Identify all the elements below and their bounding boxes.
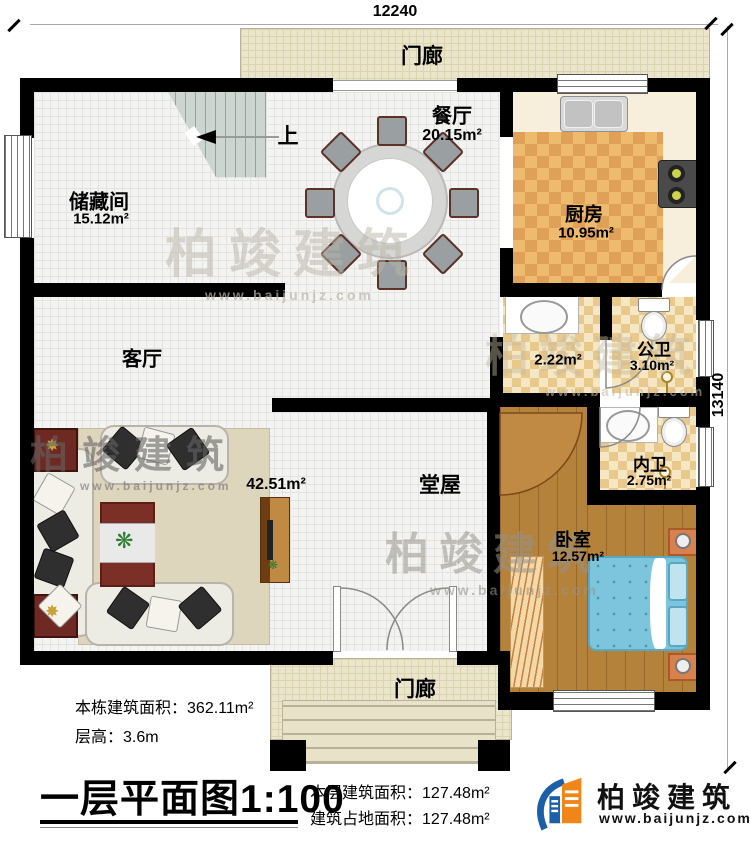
wall-hall-dining — [272, 398, 500, 412]
dimension-width: 12240 — [373, 3, 418, 21]
floor-area-label: 本层建筑面积： — [310, 785, 422, 802]
dining-chair — [377, 260, 407, 290]
wall-bedroom-bottom — [655, 692, 710, 710]
tv-set — [267, 520, 273, 560]
kitchen-window — [557, 74, 648, 94]
floor-area: 本层建筑面积：127.48m² — [310, 779, 490, 803]
title-underline-thin — [40, 827, 298, 828]
plan-title: 一层平面图1:100 — [40, 768, 345, 824]
corner-tick-top-left — [7, 19, 20, 32]
entry-door-leaf — [333, 586, 341, 652]
stove-burner — [668, 165, 685, 182]
hall-label: 堂屋 — [419, 469, 461, 499]
dining-table-center — [376, 187, 404, 215]
table-plant: ❋ — [115, 528, 133, 554]
private-bath-basin — [606, 410, 650, 442]
wall-top — [457, 78, 557, 92]
footprint-area-value: 127.48m² — [422, 811, 490, 828]
top-dimension-line — [30, 24, 718, 25]
wall-left — [20, 78, 34, 138]
pillow — [668, 562, 688, 601]
stove-burner — [668, 187, 685, 204]
nightstand-lamp — [675, 658, 691, 674]
wall-bath-divider — [600, 297, 612, 340]
kitchen-label: 厨房 — [565, 200, 603, 227]
kitchen-area: 10.95m² — [558, 225, 614, 242]
bedroom-window — [553, 690, 655, 712]
cabinet-plant: ❋ — [268, 558, 278, 572]
floor-height-label: 层高： — [75, 729, 123, 746]
storage-window — [4, 135, 32, 238]
dining-chair — [449, 188, 479, 218]
bottom-porch-label: 门廊 — [394, 673, 436, 703]
floor-height: 层高：3.6m — [75, 723, 159, 747]
wash-area-label: 2.22m² — [534, 352, 582, 369]
kitchen-sink-basin — [594, 100, 623, 128]
floor-height-value: 3.6m — [123, 729, 159, 746]
hall-area: 42.51m² — [246, 476, 306, 494]
private-bath-window — [698, 427, 714, 487]
wall-storage-bottom — [20, 283, 285, 297]
public-bath-window — [698, 320, 714, 377]
dining-chair — [377, 116, 407, 146]
nightstand-lamp — [675, 533, 691, 549]
wall-kitchen-bottom — [500, 283, 662, 297]
dining-label: 餐厅 — [432, 100, 472, 129]
wall-right — [696, 78, 710, 320]
entry-threshold — [333, 80, 457, 91]
private-bath-toilet-bowl — [661, 417, 687, 447]
public-bath-area: 3.10m² — [630, 357, 674, 373]
pillow — [668, 606, 688, 647]
footprint-area-label: 建筑占地面积： — [310, 811, 422, 828]
total-building-area: 本栋建筑面积：362.11m² — [75, 694, 253, 718]
kitchen-sink-basin — [564, 100, 593, 128]
wall-left — [20, 238, 34, 665]
porch-steps — [282, 700, 496, 764]
footprint-area: 建筑占地面积：127.48m² — [310, 805, 490, 829]
plan-title-text: 一层平面图 — [40, 778, 240, 821]
wall-bath-bedroom — [587, 490, 710, 505]
wall-corridor-bath — [587, 407, 600, 490]
brand-website: www.baijunjz.com — [599, 810, 750, 826]
dining-area: 20.15m² — [422, 127, 482, 145]
wall-hall-corridor — [487, 407, 500, 665]
living-label: 客厅 — [122, 343, 162, 372]
wash-basin — [520, 300, 568, 334]
wall-right — [696, 487, 710, 710]
wall-bedroom-bottom — [498, 692, 555, 710]
wall-top — [20, 78, 333, 92]
stairs-up-label: 上 — [278, 120, 299, 150]
stair-direction-line — [207, 136, 279, 138]
bedroom-area: 12.57m² — [552, 548, 604, 564]
title-underline-thick — [40, 820, 298, 824]
wardrobe — [510, 556, 544, 688]
floor-plan: 12240 13140 — [0, 0, 750, 843]
end-table-ornament: ✸ — [45, 436, 59, 456]
floor-area-value: 127.48m² — [422, 785, 490, 802]
brand-logo-icon — [533, 772, 591, 832]
storage-area: 15.12m² — [73, 211, 129, 228]
porch-pillar-left — [270, 740, 306, 771]
top-porch-label: 门廊 — [401, 40, 443, 70]
public-bath-toilet-tank — [638, 298, 670, 312]
dining-chair — [305, 188, 335, 218]
sofa-cushion — [145, 595, 182, 632]
total-building-area-label: 本栋建筑面积： — [75, 700, 187, 717]
wall-bottom — [20, 651, 333, 665]
wall-wash-stub — [490, 337, 503, 393]
bed-sheet-fold — [650, 558, 666, 649]
end-table-ornament: ✸ — [45, 602, 59, 622]
porch-pillar-right — [478, 740, 510, 771]
dimension-height: 13140 — [710, 373, 728, 418]
stair-arrow-head — [196, 130, 216, 144]
private-bath-area: 2.75m² — [627, 472, 671, 488]
brand-logo: 柏竣建筑 www.baijunjz.com — [533, 770, 733, 835]
wall-mid-horizontal — [640, 393, 710, 407]
entry-door-leaf — [449, 586, 457, 652]
wall-kitchen-left — [500, 92, 513, 137]
wall-mid-horizontal — [490, 393, 600, 407]
total-building-area-value: 362.11m² — [187, 700, 253, 717]
